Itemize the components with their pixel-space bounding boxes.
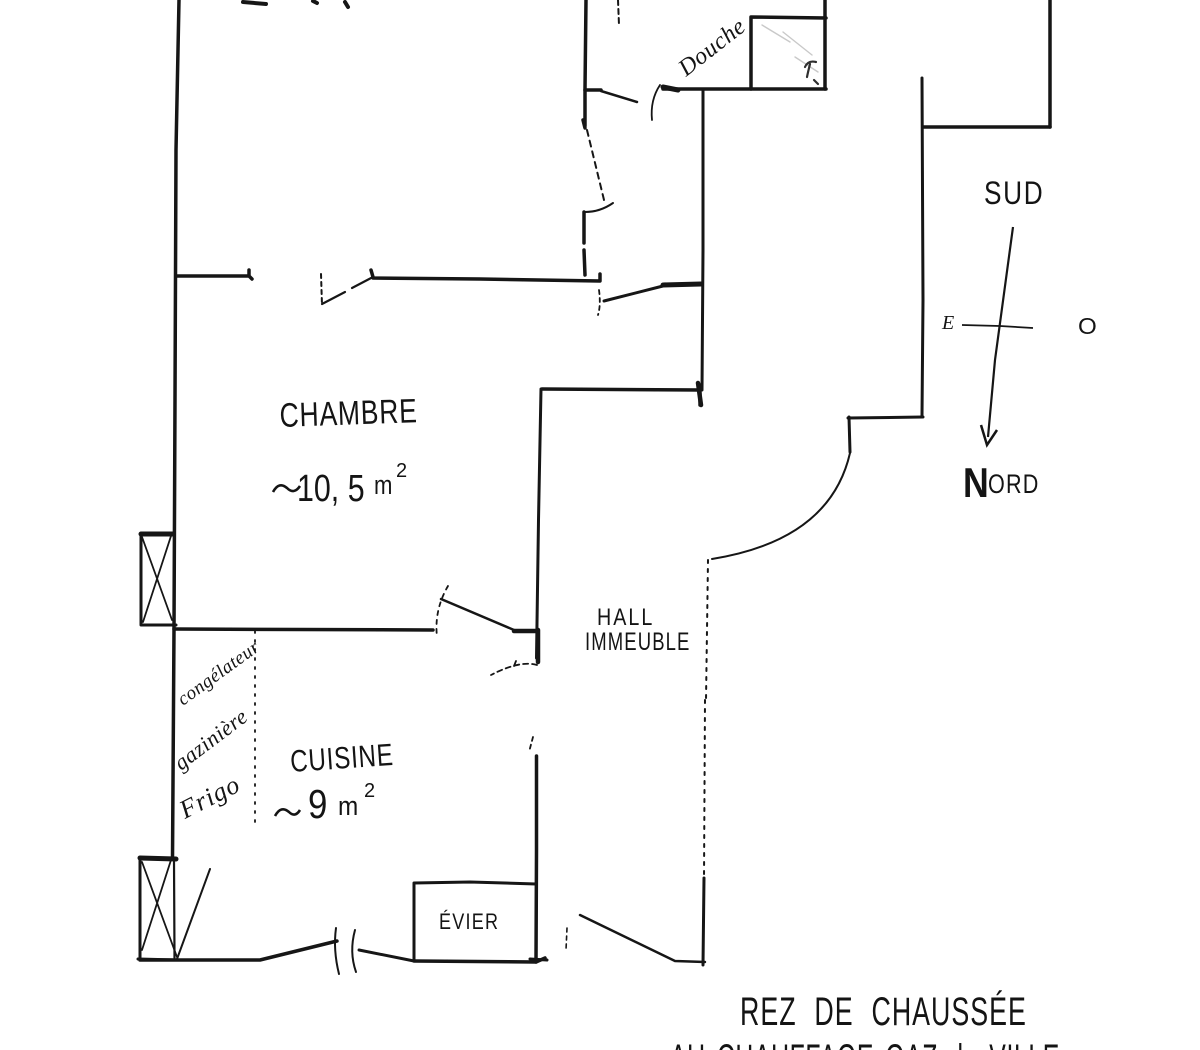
svg-text:REZ DE CHAUSSÉE: REZ DE CHAUSSÉE	[740, 990, 1027, 1035]
svg-text:ORD: ORD	[988, 470, 1040, 500]
svg-text:2: 2	[396, 460, 407, 482]
svg-text:9: 9	[308, 782, 327, 827]
svg-text:SUD: SUD	[984, 177, 1044, 212]
svg-text:O: O	[1078, 314, 1097, 339]
svg-text:gazinière: gazinière	[169, 704, 252, 775]
svg-text:Douche: Douche	[673, 13, 751, 82]
svg-text:2: 2	[364, 780, 375, 802]
svg-text:ÉVIER: ÉVIER	[439, 909, 499, 934]
svg-text:congélateur: congélateur	[174, 636, 264, 710]
svg-text:Frigo: Frigo	[174, 769, 245, 824]
svg-text:10, 5: 10, 5	[297, 468, 365, 510]
svg-text:AU CHAUFFAGE GAZ de VILLE: AU CHAUFFAGE GAZ de VILLE	[670, 1037, 1060, 1050]
svg-text:E: E	[941, 312, 954, 334]
svg-text:N: N	[963, 460, 989, 506]
svg-text:CHAMBRE: CHAMBRE	[279, 392, 418, 435]
svg-text:CUISINE: CUISINE	[289, 737, 395, 779]
svg-text:m: m	[374, 471, 392, 500]
svg-text:m: m	[338, 792, 358, 821]
svg-text:IMMEUBLE: IMMEUBLE	[585, 627, 690, 655]
